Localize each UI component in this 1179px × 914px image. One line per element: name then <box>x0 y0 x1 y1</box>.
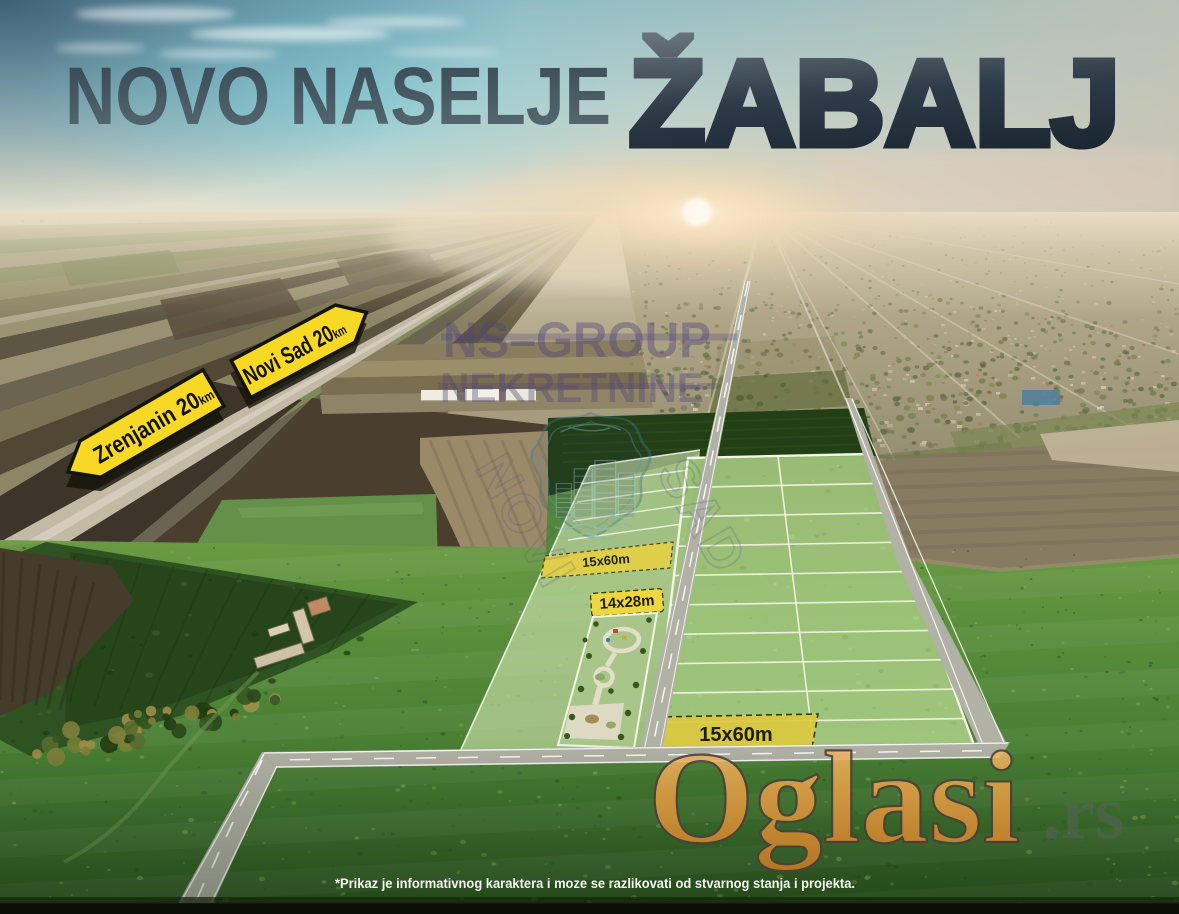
svg-text:NOVO NASELJE: NOVO NASELJE <box>65 51 611 142</box>
svg-text:Oglasi: Oglasi <box>648 724 1020 871</box>
svg-text:ŽABALJ: ŽABALJ <box>629 35 1120 171</box>
svg-text:.rs: .rs <box>1042 771 1124 855</box>
svg-text:*Prikaz je informativnog karak: *Prikaz je informativnog karaktera i moz… <box>335 876 855 891</box>
